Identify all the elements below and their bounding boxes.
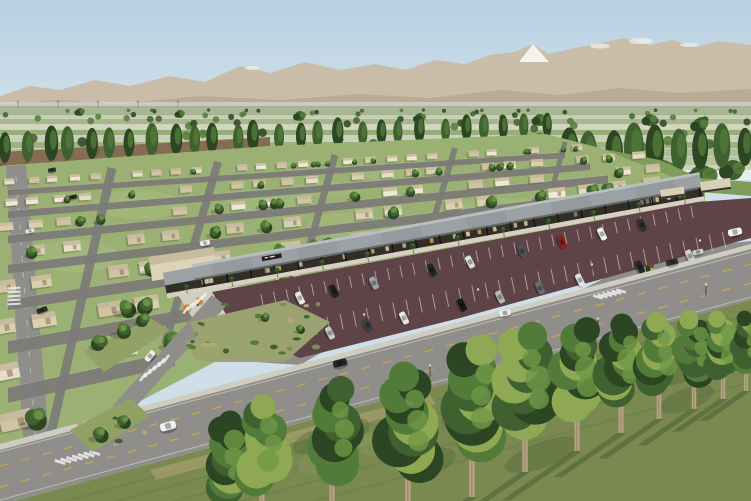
distant-tree	[353, 117, 360, 124]
tree-highlight	[32, 247, 37, 252]
poplar-light	[26, 135, 32, 152]
foliage-highlight	[471, 407, 493, 429]
pole-lamp	[705, 283, 707, 285]
distant-tree	[256, 109, 260, 113]
shrub	[312, 344, 320, 349]
shrub	[287, 347, 293, 351]
shrub	[316, 302, 321, 306]
house	[160, 229, 180, 243]
poplar-light	[50, 130, 57, 150]
foliage-highlight	[335, 419, 355, 439]
tree-highlight	[34, 410, 43, 419]
distant-tree	[344, 120, 351, 127]
distant-tree	[567, 118, 574, 125]
tree-highlight	[99, 429, 105, 435]
distant-tree	[562, 110, 567, 115]
foliage-highlight	[525, 366, 551, 392]
shrub	[250, 340, 259, 345]
house	[295, 195, 312, 206]
snow-patch	[590, 44, 610, 49]
distant-tree	[314, 110, 319, 115]
distant-tree	[530, 125, 538, 133]
house	[379, 170, 394, 180]
foliage	[250, 394, 275, 419]
poplar-light	[251, 123, 257, 141]
house	[279, 177, 294, 187]
tree-highlight	[372, 159, 374, 161]
shrub	[115, 439, 123, 443]
distant-tree	[228, 114, 234, 120]
poplar-light	[361, 124, 366, 138]
foliage-highlight	[660, 358, 677, 375]
scene-svg	[0, 0, 751, 501]
foliage-highlight	[260, 417, 278, 435]
tree-highlight	[143, 299, 150, 306]
distant-tree	[733, 109, 738, 114]
shrub	[112, 416, 117, 419]
poplar-light	[3, 136, 9, 153]
shrub	[75, 421, 83, 425]
house-court	[365, 212, 369, 217]
house	[304, 176, 319, 186]
distant-tree	[95, 114, 101, 120]
tree-clump	[180, 111, 185, 116]
tree-highlight	[123, 417, 128, 422]
tree-highlight	[591, 186, 596, 191]
tree-highlight	[415, 170, 418, 173]
foliage	[679, 310, 698, 329]
distant-tree	[213, 116, 220, 123]
house	[529, 159, 544, 169]
tree-highlight	[529, 149, 531, 151]
shrub	[303, 304, 309, 307]
tree-highlight	[265, 222, 270, 227]
house-court	[557, 191, 561, 196]
tree-clump	[700, 119, 708, 127]
poplar-light	[418, 119, 424, 135]
house	[281, 216, 301, 230]
pole-lamp	[429, 364, 431, 366]
house-court	[73, 245, 77, 250]
house	[353, 208, 373, 222]
house-court	[45, 317, 51, 324]
foliage-highlight	[720, 324, 735, 339]
tree-highlight	[279, 199, 283, 203]
distant-tree	[147, 116, 154, 123]
foliage-highlight	[471, 386, 490, 405]
poplar-light	[444, 121, 449, 134]
tree-clump	[174, 112, 180, 118]
house	[643, 164, 660, 175]
foliage-highlight	[224, 430, 245, 451]
poplar-light	[150, 127, 157, 146]
tree-highlight	[125, 302, 132, 309]
house	[349, 172, 364, 182]
house	[224, 222, 244, 236]
foliage	[466, 334, 498, 366]
poplar-light	[465, 117, 470, 132]
shrub	[194, 332, 199, 336]
house	[229, 201, 246, 212]
snow-patch	[680, 43, 698, 47]
snow-patch	[629, 38, 653, 44]
distant-tree	[131, 112, 137, 118]
poplar-light	[175, 127, 181, 145]
foliage-highlight	[405, 390, 424, 409]
house	[443, 198, 463, 212]
poplar-light	[278, 127, 283, 142]
distant-tree	[3, 112, 9, 118]
tree-highlight	[354, 160, 356, 162]
foliage-highlight	[658, 345, 673, 360]
foliage-highlight	[694, 327, 708, 341]
distant-tree	[65, 109, 69, 113]
distant-tree	[474, 110, 479, 115]
house	[24, 197, 39, 207]
shrub	[189, 345, 196, 349]
distant-tree	[512, 112, 518, 118]
tree-highlight	[619, 169, 623, 173]
distant-tree	[258, 128, 267, 137]
shrub	[221, 303, 229, 307]
foliage-highlight	[623, 335, 637, 349]
snow-patch	[245, 66, 259, 70]
poplar-light	[698, 133, 706, 156]
distant-tree	[654, 108, 658, 112]
poplar-light	[66, 130, 73, 149]
car-glass	[669, 259, 674, 264]
house-court	[42, 280, 47, 286]
tree-highlight	[262, 201, 266, 205]
tree-highlight	[193, 170, 195, 172]
distant-tree	[35, 115, 41, 121]
distant-tree	[442, 109, 446, 113]
house-court	[236, 227, 240, 232]
house-court	[455, 203, 459, 208]
distant-tree	[694, 108, 698, 112]
tree-clump	[532, 117, 540, 125]
foliage	[518, 322, 547, 351]
distant-tree	[87, 117, 94, 124]
tree-highlight	[318, 162, 320, 164]
house-court	[4, 324, 10, 331]
pole-lamp	[363, 313, 365, 315]
tree-highlight	[392, 208, 397, 213]
foliage-highlight	[575, 342, 591, 358]
shrub	[142, 430, 147, 434]
foliage-highlight	[407, 410, 427, 430]
foliage	[327, 376, 354, 403]
foliage-highlight	[334, 439, 352, 457]
cafe-table	[197, 304, 199, 306]
shrub	[270, 345, 278, 350]
aerial-render-image: Aerial rendering of a desert master-plan…	[0, 0, 751, 501]
shrub	[198, 322, 203, 325]
poplar-light	[336, 121, 342, 138]
tree-clump	[80, 109, 85, 114]
house	[493, 177, 510, 188]
house	[26, 219, 43, 230]
house-court	[293, 220, 297, 225]
tree-clump	[74, 110, 80, 116]
foliage	[610, 314, 633, 337]
distant-tree	[242, 111, 247, 116]
tree-highlight	[540, 192, 545, 197]
shrub	[292, 337, 300, 340]
foliage	[574, 317, 600, 343]
tree-highlight	[143, 315, 148, 320]
house	[178, 185, 193, 195]
poplar-light	[211, 126, 217, 143]
house	[61, 240, 81, 254]
distant-tree	[360, 109, 364, 113]
distant-tree	[310, 111, 315, 116]
shrub	[113, 443, 119, 446]
house-court	[119, 269, 124, 275]
poplar-light	[108, 131, 114, 148]
foliage	[646, 312, 667, 333]
distant-tree	[450, 123, 458, 131]
house	[125, 233, 145, 247]
pole-lamp	[597, 317, 599, 319]
house	[381, 187, 398, 198]
foliage	[389, 362, 419, 392]
house-court	[171, 234, 175, 239]
tree-highlight	[500, 164, 503, 167]
tree-highlight	[562, 147, 564, 149]
foliage-highlight	[408, 431, 429, 452]
distant-tree	[199, 129, 208, 138]
tree-highlight	[583, 158, 586, 161]
pole-lamp	[699, 239, 701, 241]
distant-tree	[480, 108, 484, 112]
poplar-light	[128, 132, 134, 148]
tree-highlight	[354, 193, 358, 197]
tree-highlight	[526, 150, 528, 152]
shrub	[304, 315, 310, 318]
distant-tree	[207, 108, 210, 111]
tree-highlight	[100, 216, 104, 220]
distant-tree	[526, 108, 530, 112]
poplar-light	[397, 123, 402, 137]
tree-highlight	[510, 163, 513, 166]
poplar-light	[743, 132, 751, 153]
distant-tree	[77, 137, 87, 147]
poplar-light	[237, 128, 242, 143]
distant-tree	[629, 113, 635, 119]
tree-highlight	[327, 162, 329, 164]
shrub	[279, 303, 287, 306]
tree-clump	[293, 114, 300, 121]
field-stripe	[0, 119, 751, 124]
distant-tree	[123, 115, 129, 121]
tree-clump	[642, 117, 650, 125]
poplar-light	[546, 116, 551, 130]
tree-highlight	[80, 217, 84, 221]
tree-highlight	[410, 188, 414, 192]
tree-highlight	[217, 205, 221, 209]
tree-highlight	[99, 337, 105, 343]
poplar-light	[380, 122, 385, 136]
distant-tree	[422, 108, 425, 111]
pole-lamp	[591, 263, 593, 265]
tree-highlight	[492, 197, 497, 202]
distant-tree	[743, 118, 750, 125]
poplar-light	[193, 129, 199, 145]
tree-highlight	[264, 314, 268, 318]
tree-highlight	[299, 326, 303, 330]
house	[3, 198, 18, 208]
tree-highlight	[607, 156, 610, 159]
house	[630, 151, 645, 161]
distant-tree	[728, 109, 732, 113]
tree-highlight	[293, 164, 295, 166]
poplar-light	[316, 124, 322, 139]
distant-tree	[127, 108, 131, 112]
car-glass	[732, 229, 738, 235]
tree-highlight	[214, 227, 219, 232]
house	[229, 181, 244, 191]
tree-highlight	[438, 168, 441, 171]
poplar-light	[523, 116, 528, 130]
house	[0, 222, 14, 233]
shrub	[190, 340, 194, 343]
house	[54, 217, 71, 228]
poplar-light	[90, 132, 96, 149]
house	[466, 180, 483, 191]
foliage	[708, 310, 725, 327]
tree-highlight	[576, 147, 578, 149]
foliage-highlight	[523, 349, 541, 367]
distant-tree	[517, 109, 521, 113]
tree-highlight	[261, 182, 264, 185]
house-court	[137, 238, 141, 243]
foliage-highlight	[265, 435, 282, 452]
foliage-highlight	[657, 331, 670, 344]
house	[77, 193, 92, 203]
tree-highlight	[491, 165, 494, 168]
poplar-light	[502, 118, 507, 131]
shrub	[255, 314, 262, 319]
tree-clump	[650, 115, 657, 122]
car-glass	[502, 310, 507, 315]
tree-clump	[300, 112, 306, 118]
shrub	[278, 351, 286, 354]
distant-tree	[660, 120, 667, 127]
shrub	[208, 342, 217, 346]
distant-tree	[150, 108, 154, 112]
distant-tree	[670, 114, 676, 120]
foliage-highlight	[529, 389, 549, 409]
shrub	[223, 348, 229, 353]
tree-highlight	[121, 325, 127, 331]
house-court	[37, 249, 41, 254]
poplar-light	[300, 126, 305, 141]
distant-tree	[155, 116, 161, 122]
foliage-highlight	[257, 450, 279, 472]
poplar-light	[483, 117, 488, 132]
pole-lamp	[477, 288, 479, 290]
distant-treeline	[0, 106, 751, 115]
distant-tree	[355, 111, 360, 116]
poplar-light	[652, 130, 662, 157]
shrub	[287, 318, 294, 323]
poplar-light	[677, 134, 686, 158]
tree-highlight	[132, 191, 135, 194]
poplar-light	[720, 128, 729, 153]
house	[171, 206, 188, 217]
house	[528, 174, 545, 185]
foliage-highlight	[332, 402, 349, 419]
distant-tree	[400, 109, 404, 113]
distant-tree	[202, 113, 208, 119]
